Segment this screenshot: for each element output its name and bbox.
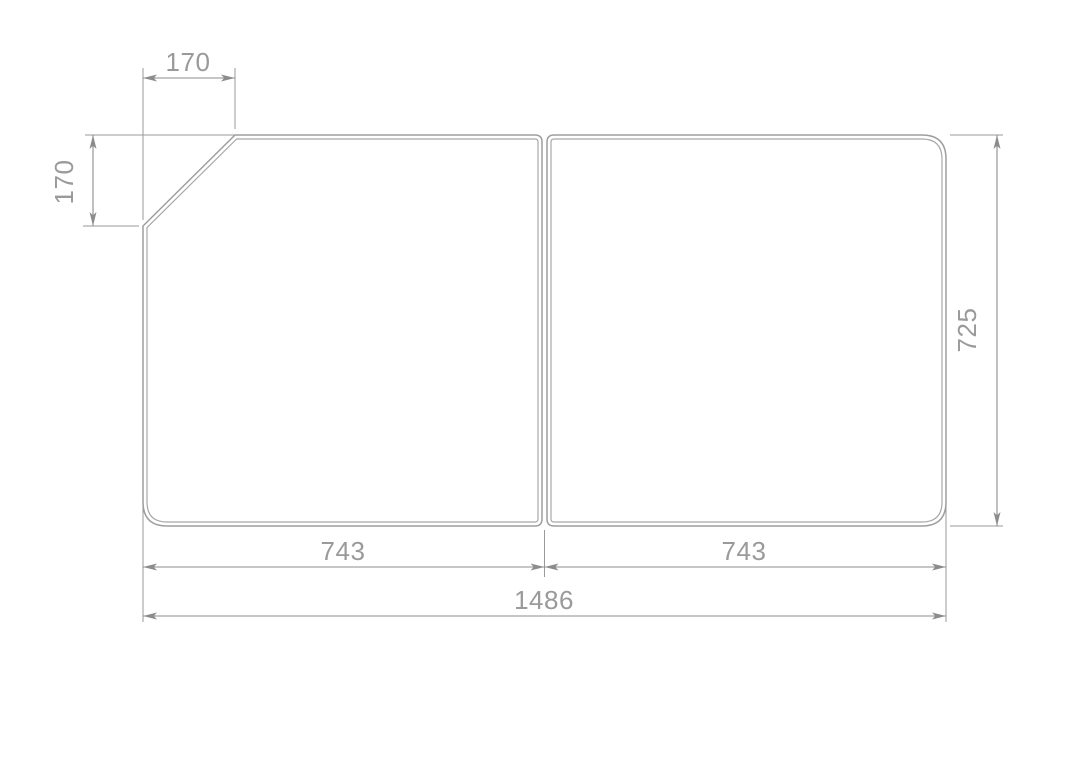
right-panel-outline <box>547 135 946 526</box>
dimension-total-width: 1486 <box>143 585 946 616</box>
dimension-label: 743 <box>321 536 366 566</box>
dimension-left-chamfer-height: 170 <box>49 135 235 226</box>
technical-drawing: 170 170 725 743 743 <box>0 0 1080 762</box>
dimension-label: 170 <box>49 160 79 205</box>
dimension-label: 1486 <box>514 585 574 615</box>
left-panel <box>143 135 542 526</box>
dimension-top-chamfer-width: 170 <box>143 47 235 220</box>
dimension-panel-height: 725 <box>950 135 1003 526</box>
dimension-right-panel-width: 743 <box>545 536 947 567</box>
dimension-label: 725 <box>952 308 982 353</box>
drawing-canvas: 170 170 725 743 743 <box>0 0 1080 762</box>
dimension-label: 170 <box>166 47 211 77</box>
dimension-label: 743 <box>722 536 767 566</box>
right-panel <box>547 135 946 526</box>
left-panel-outline <box>143 135 542 526</box>
dimension-left-panel-width: 743 <box>143 536 545 567</box>
left-panel-inner-edge <box>147 139 538 522</box>
right-panel-inner-edge <box>551 139 942 522</box>
